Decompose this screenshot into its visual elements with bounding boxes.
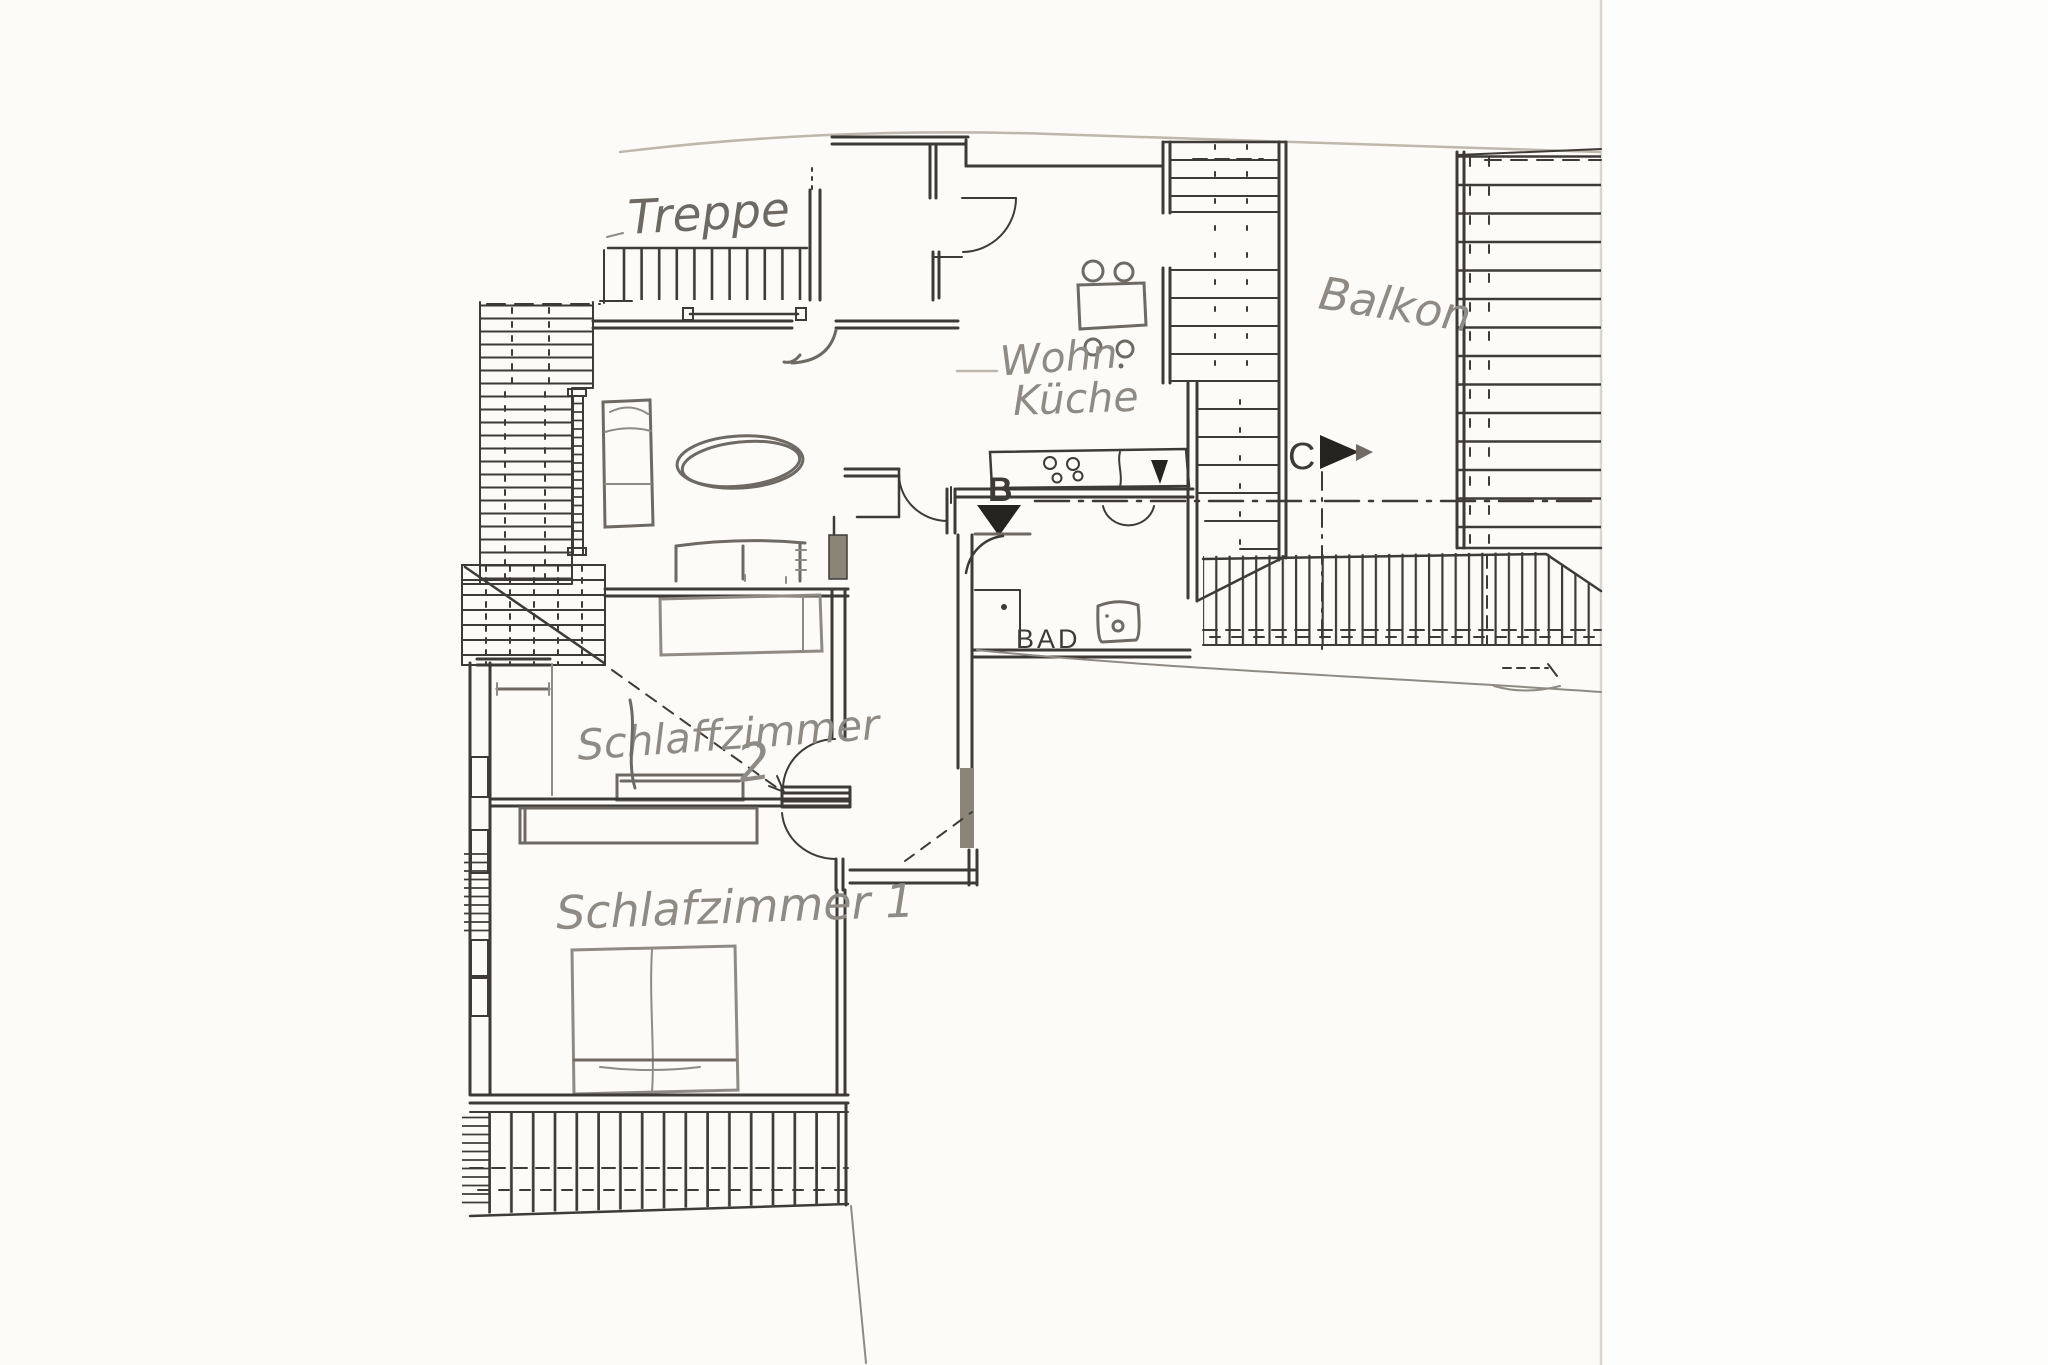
living-room-west-hatch — [462, 302, 600, 584]
stair-treads — [608, 248, 807, 300]
hall-wall-shaded — [960, 768, 974, 848]
marker-c-letter: C — [1288, 436, 1315, 478]
floor-plan-drawing: Treppe — [0, 0, 2048, 1365]
scanned-floor-plan-page: Treppe — [0, 0, 2048, 1365]
scan-margin — [1601, 0, 2048, 1365]
chimney — [829, 535, 847, 579]
roof-hatch-right — [1457, 149, 1601, 548]
label-treppe: Treppe — [627, 182, 792, 245]
balcony-posts — [470, 1112, 848, 1214]
label-bad: BAD — [1016, 624, 1081, 654]
label-kueche: Küche — [1012, 373, 1139, 425]
balcony-left-hatch — [462, 1116, 489, 1208]
west-hatch-column — [464, 852, 490, 938]
